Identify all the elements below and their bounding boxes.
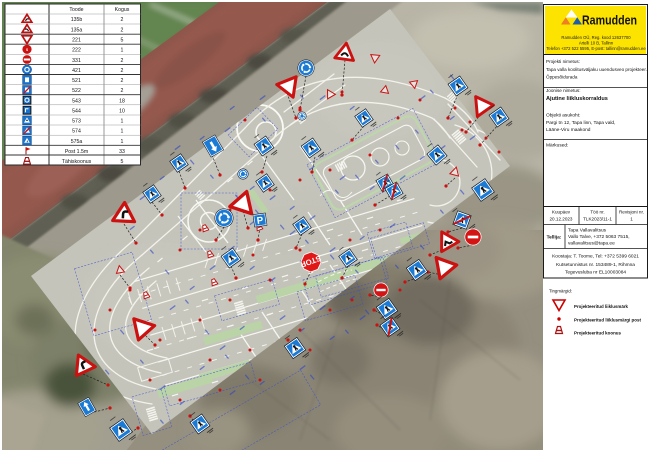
svg-text:1: 1 [121, 129, 124, 135]
svg-text:521: 521 [72, 78, 81, 84]
svg-text:Töö nr.: Töö nr. [590, 210, 604, 215]
svg-text:575a: 575a [71, 139, 83, 145]
svg-text:Tellija:: Tellija: [547, 235, 562, 241]
svg-text:573: 573 [72, 119, 81, 125]
svg-text:Post 1.5m: Post 1.5m [65, 149, 88, 155]
svg-text:Kogus: Kogus [115, 7, 130, 13]
svg-text:Tapa valla koolitusväljaku uue: Tapa valla koolitusväljaku uuendusveo pr… [546, 67, 647, 72]
svg-text:Koostaja: T. Toome, Tel: +372: Koostaja: T. Toome, Tel: +372 5399 6021 [552, 254, 639, 260]
svg-text:20.12.2023: 20.12.2023 [550, 217, 573, 222]
svg-text:Projekteeritud liiklusmärk: Projekteeritud liiklusmärk [574, 304, 628, 310]
svg-text:2: 2 [121, 88, 124, 94]
svg-text:Õppesõidurada: Õppesõidurada [546, 74, 578, 80]
svg-text:222: 222 [72, 48, 81, 54]
svg-text:33: 33 [119, 149, 125, 155]
svg-text:Ramudden OÜ, Reg. kood 1263770: Ramudden OÜ, Reg. kood 12637700 [561, 35, 631, 40]
svg-text:Ajutine liikluskorraldus: Ajutine liikluskorraldus [546, 96, 608, 102]
svg-text:Ramudden: Ramudden [582, 13, 637, 28]
svg-text:Joonise nimetus:: Joonise nimetus: [546, 88, 580, 93]
svg-text:5: 5 [121, 38, 124, 44]
svg-text:S: S [26, 48, 28, 52]
svg-text:18: 18 [119, 98, 125, 104]
svg-text:421: 421 [72, 68, 81, 74]
svg-text:Revisjoni nr.: Revisjoni nr. [619, 210, 644, 215]
svg-text:331: 331 [72, 58, 81, 64]
svg-text:Tegevusluba nr EL10003084: Tegevusluba nr EL10003084 [565, 270, 626, 276]
svg-text:Lääne-Viru maakond: Lääne-Viru maakond [546, 127, 591, 133]
svg-text:Projekteeritud liiklusmärgi po: Projekteeritud liiklusmärgi post [574, 318, 641, 324]
svg-text:Telefon +372 522 5595, E-post:: Telefon +372 522 5595, E-post: tallinn@r… [546, 46, 646, 51]
svg-text:Pargi tn 12, Tapa linn, Tapa v: Pargi tn 12, Tapa linn, Tapa vald, [546, 120, 615, 126]
svg-text:Toode: Toode [69, 7, 83, 13]
svg-text:1: 1 [121, 119, 124, 125]
svg-text:Objekti asukoht:: Objekti asukoht: [546, 113, 580, 119]
svg-text:522: 522 [72, 88, 81, 94]
svg-text:5: 5 [121, 159, 124, 165]
svg-text:2: 2 [121, 78, 124, 84]
svg-text:135a: 135a [71, 27, 83, 33]
svg-text:Kuupäev: Kuupäev [552, 210, 571, 215]
svg-text:1: 1 [121, 48, 124, 54]
svg-text:Projekti nimetus:: Projekti nimetus: [546, 59, 580, 64]
svg-text:Märkused:: Märkused: [546, 143, 568, 149]
svg-text:Tapa Vallavalitsus: Tapa Vallavalitsus [568, 228, 607, 234]
svg-text:TLK2023/11-1: TLK2023/11-1 [583, 217, 612, 222]
svg-text:221: 221 [72, 38, 81, 44]
svg-text:Projekteeritud koonus: Projekteeritud koonus [574, 331, 621, 337]
svg-text:1: 1 [630, 217, 633, 222]
svg-text:2: 2 [121, 68, 124, 74]
svg-text:574: 574 [72, 129, 81, 135]
svg-text:vallavalitsus@tapa.ee: vallavalitsus@tapa.ee [568, 241, 615, 247]
svg-text:544: 544 [72, 108, 81, 114]
svg-text:10: 10 [119, 108, 125, 114]
svg-text:543: 543 [72, 98, 81, 104]
svg-text:Vallo Talve, +372 5063 7515,: Vallo Talve, +372 5063 7515, [568, 234, 630, 240]
svg-text:135b: 135b [71, 17, 83, 23]
svg-text:2: 2 [121, 17, 124, 23]
svg-text:Kutsetunnistus nr. 153489-1, R: Kutsetunnistus nr. 153489-1, Rihmna [556, 262, 635, 268]
svg-text:2: 2 [121, 27, 124, 33]
svg-text:Tingmärgid:: Tingmärgid: [549, 289, 572, 294]
svg-text:Artelli 10 B, Tallinn: Artelli 10 B, Tallinn [579, 41, 614, 46]
svg-text:2: 2 [121, 58, 124, 64]
svg-text:1: 1 [121, 139, 124, 145]
svg-text:Tähiskoonus: Tähiskoonus [62, 159, 92, 165]
